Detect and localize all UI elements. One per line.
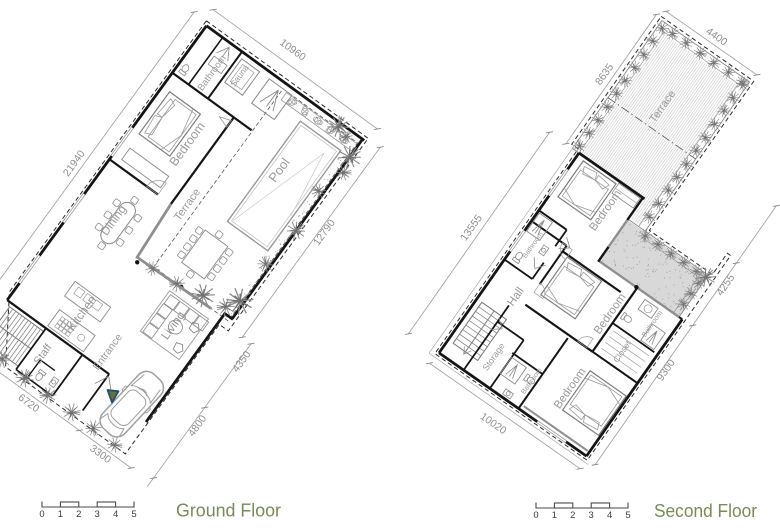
- svg-text:5: 5: [625, 510, 630, 521]
- svg-text:Terrace: Terrace: [647, 88, 678, 125]
- svg-text:4350: 4350: [230, 349, 254, 375]
- svg-text:Staff: Staff: [32, 341, 55, 367]
- svg-text:Terrace: Terrace: [172, 187, 203, 224]
- svg-text:0: 0: [39, 509, 44, 520]
- svg-text:0: 0: [533, 510, 538, 521]
- svg-text:2: 2: [570, 510, 575, 521]
- svg-text:Ground Floor: Ground Floor: [176, 500, 281, 521]
- svg-text:Hall: Hall: [505, 285, 526, 308]
- svg-text:3: 3: [95, 509, 100, 520]
- svg-text:4255: 4255: [714, 272, 737, 298]
- svg-text:Dining: Dining: [98, 202, 129, 238]
- svg-text:Entrance: Entrance: [91, 331, 126, 372]
- svg-text:2: 2: [76, 509, 81, 520]
- svg-text:3300: 3300: [87, 443, 113, 467]
- svg-text:Storage: Storage: [480, 341, 506, 373]
- svg-text:1: 1: [58, 509, 63, 520]
- svg-text:4: 4: [113, 509, 118, 520]
- svg-text:3: 3: [589, 510, 594, 521]
- svg-text:5: 5: [131, 509, 136, 520]
- svg-text:Living: Living: [158, 309, 188, 343]
- svg-text:13555: 13555: [458, 212, 485, 243]
- svg-text:10020: 10020: [478, 410, 509, 437]
- svg-text:Bedroom: Bedroom: [587, 188, 624, 233]
- svg-text:12790: 12790: [311, 217, 338, 248]
- svg-text:1: 1: [552, 510, 557, 521]
- svg-text:4800: 4800: [186, 413, 210, 439]
- svg-text:9300: 9300: [655, 357, 678, 383]
- svg-text:8635: 8635: [593, 61, 616, 87]
- svg-text:Second Floor: Second Floor: [654, 500, 757, 521]
- svg-text:6720: 6720: [16, 392, 42, 416]
- svg-text:Pool: Pool: [265, 155, 292, 185]
- svg-text:4: 4: [607, 510, 612, 521]
- svg-text:4400: 4400: [703, 25, 729, 48]
